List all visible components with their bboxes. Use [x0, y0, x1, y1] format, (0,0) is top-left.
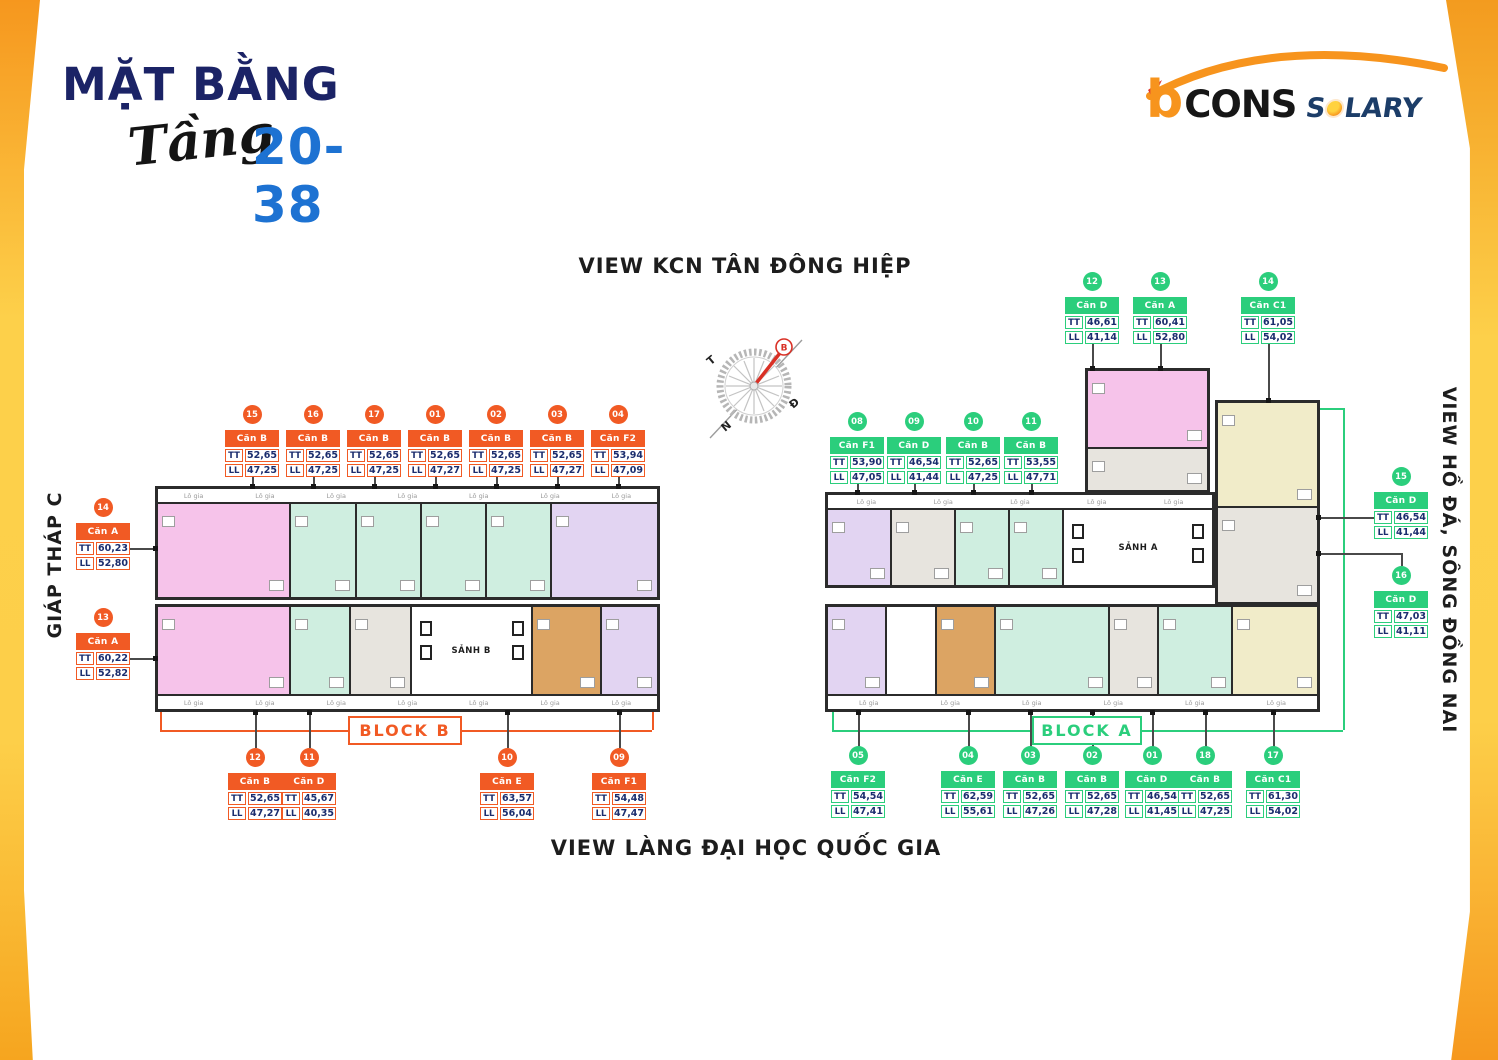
unit-area-row: LL56,04 — [480, 807, 534, 820]
logo-solary-s: S — [1304, 93, 1328, 124]
area-value: 52,80 — [96, 557, 130, 570]
unit-area-row: TT54,48 — [592, 792, 646, 805]
unit-area-row: LL47,26 — [1003, 805, 1057, 818]
unit-name: Căn D — [282, 773, 336, 790]
area-type-label: TT — [469, 449, 487, 462]
unit-card: 05Căn F2TT54,54LL47,41 — [831, 746, 885, 818]
area-type-label: LL — [1178, 805, 1196, 818]
connector-dot — [617, 710, 622, 715]
area-type-label: LL — [225, 464, 243, 477]
unit-name: Căn B — [1004, 437, 1058, 454]
connector-dot — [855, 490, 860, 495]
unit-area-row: LL47,25 — [469, 464, 523, 477]
plan-unit — [937, 607, 996, 694]
plan-unit — [828, 607, 887, 694]
area-type-label: LL — [1065, 805, 1083, 818]
area-type-label: TT — [76, 652, 94, 665]
unit-area-row: LL55,61 — [941, 805, 995, 818]
unit-number-badge: 12 — [246, 748, 265, 767]
unit-area-row: LL41,44 — [887, 471, 941, 484]
connector-line — [1273, 712, 1275, 748]
area-type-label: LL — [830, 471, 848, 484]
unit-number-badge: 05 — [849, 746, 868, 765]
connector-line — [1318, 517, 1374, 519]
connector-dot — [253, 710, 258, 715]
area-value: 52,82 — [96, 667, 130, 680]
compass-north: B — [781, 344, 788, 354]
area-value: 47,25 — [1198, 805, 1232, 818]
area-value: 47,28 — [1085, 805, 1119, 818]
area-value: 47,41 — [851, 805, 885, 818]
area-type-label: TT — [592, 792, 610, 805]
unit-area-row: TT52,65 — [225, 449, 279, 462]
unit-area-row: LL41,45 — [1125, 805, 1179, 818]
unit-number-badge: 14 — [1259, 272, 1278, 291]
area-value: 47,26 — [1023, 805, 1057, 818]
area-type-label: TT — [830, 456, 848, 469]
balcony-label: Lô gia — [859, 699, 878, 707]
area-type-label: TT — [941, 790, 959, 803]
area-type-label: TT — [1003, 790, 1021, 803]
logo-solary: S LARY — [1304, 93, 1424, 124]
elevator-shaft — [1192, 548, 1204, 563]
area-type-label: TT — [591, 449, 609, 462]
area-value: 52,65 — [306, 449, 340, 462]
area-value: 47,25 — [245, 464, 279, 477]
unit-card: 01Căn DTT46,54LL41,45 — [1125, 746, 1179, 818]
unit-number-badge: 13 — [1151, 272, 1170, 291]
unit-name: Căn B — [530, 430, 584, 447]
area-type-label: LL — [831, 805, 849, 818]
logo-cons: CONS — [1184, 88, 1296, 121]
area-value: 52,65 — [966, 456, 1000, 469]
unit-card: 14Căn C1TT61,05LL54,02 — [1241, 272, 1295, 344]
area-type-label: TT — [282, 792, 300, 805]
unit-card: 10Căn ETT63,57LL56,04 — [480, 748, 534, 820]
plan-unit: SẢNH B — [412, 607, 533, 694]
area-value: 47,27 — [550, 464, 584, 477]
area-value: 40,35 — [302, 807, 336, 820]
area-value: 47,25 — [489, 464, 523, 477]
unit-number-badge: 01 — [1143, 746, 1162, 765]
area-value: 56,04 — [500, 807, 534, 820]
connector-line — [507, 712, 509, 748]
unit-area-row: TT52,65 — [347, 449, 401, 462]
area-type-label: LL — [228, 807, 246, 820]
area-value: 52,65 — [245, 449, 279, 462]
unit-card: 12Căn BTT52,65LL47,27 — [228, 748, 282, 820]
unit-area-row: TT46,61 — [1065, 316, 1119, 329]
unit-area-row: TT53,94 — [591, 449, 645, 462]
connector-dot — [1271, 710, 1276, 715]
balcony-label: Lô gia — [326, 699, 345, 707]
area-value: 47,25 — [966, 471, 1000, 484]
area-type-label: LL — [1241, 331, 1259, 344]
connector-dot — [372, 484, 377, 489]
connector-dot — [555, 484, 560, 489]
unit-number-badge: 01 — [426, 405, 445, 424]
unit-number-badge: 14 — [94, 498, 113, 517]
unit-area-row: LL47,05 — [830, 471, 884, 484]
plan-unit — [158, 504, 291, 597]
unit-area-row: TT47,03 — [1374, 610, 1428, 623]
elevator-shaft — [512, 621, 524, 636]
area-type-label: TT — [1374, 610, 1392, 623]
area-type-label: TT — [1374, 511, 1392, 524]
connector-dot — [307, 710, 312, 715]
area-type-label: LL — [946, 471, 964, 484]
area-type-label: LL — [1374, 526, 1392, 539]
unit-area-row: TT53,55 — [1004, 456, 1058, 469]
plan-unit — [291, 607, 350, 694]
unit-area-row: TT52,65 — [408, 449, 462, 462]
unit-area-row: TT46,54 — [1125, 790, 1179, 803]
area-type-label: LL — [347, 464, 365, 477]
elevator-shaft — [420, 621, 432, 636]
view-label-top: VIEW KCN TÂN ĐÔNG HIỆP — [578, 254, 911, 278]
unit-area-row: LL54,02 — [1241, 331, 1295, 344]
unit-name: Căn D — [1125, 771, 1179, 788]
area-value: 46,61 — [1085, 316, 1119, 329]
plan-unit — [1218, 508, 1317, 602]
area-value: 46,54 — [1145, 790, 1179, 803]
page-title: MẶT BẰNG — [62, 62, 340, 107]
balcony-label: Lô gia — [469, 699, 488, 707]
connector-line — [255, 712, 257, 748]
unit-area-row: TT46,54 — [1374, 511, 1428, 524]
floor-range: 20-38 — [252, 118, 345, 234]
unit-card: 15Căn DTT46,54LL41,44 — [1374, 467, 1428, 539]
unit-area-row: TT52,65 — [1003, 790, 1057, 803]
unit-area-row: TT52,65 — [946, 456, 1000, 469]
unit-area-row: LL41,11 — [1374, 625, 1428, 638]
area-value: 52,65 — [550, 449, 584, 462]
area-value: 41,14 — [1085, 331, 1119, 344]
balcony-strip: Lô giaLô giaLô giaLô giaLô gia — [828, 495, 1212, 510]
lobby-label: SẢNH A — [1118, 543, 1157, 553]
area-type-label: TT — [1178, 790, 1196, 803]
balcony-label: Lô gia — [857, 498, 876, 506]
unit-area-row: TT52,65 — [469, 449, 523, 462]
unit-name: Căn E — [941, 771, 995, 788]
connector-dot — [1316, 515, 1321, 520]
plan-unit — [1010, 510, 1064, 585]
connector-dot — [1028, 710, 1033, 715]
connector-dot — [1203, 710, 1208, 715]
balcony-label: Lô gia — [612, 699, 631, 707]
area-value: 47,09 — [611, 464, 645, 477]
plan-units: SẢNH B — [158, 607, 657, 694]
unit-number-badge: 03 — [1021, 746, 1040, 765]
connector-line — [160, 712, 162, 730]
connector-line — [1343, 408, 1345, 730]
area-type-label: LL — [1065, 331, 1083, 344]
area-value: 60,22 — [96, 652, 130, 665]
unit-number-badge: 11 — [1022, 412, 1041, 431]
unit-area-row: TT52,65 — [1065, 790, 1119, 803]
area-type-label: LL — [76, 557, 94, 570]
area-value: 45,67 — [302, 792, 336, 805]
unit-area-row: LL47,25 — [347, 464, 401, 477]
unit-area-row: LL47,41 — [831, 805, 885, 818]
area-value: 47,03 — [1394, 610, 1428, 623]
floor-plan-bar: Lô giaLô giaLô giaLô giaLô giaLô gia — [825, 604, 1320, 712]
unit-card: 02Căn BTT52,65LL47,25 — [469, 405, 523, 477]
unit-area-row: LL47,28 — [1065, 805, 1119, 818]
connector-line — [309, 712, 311, 748]
connector-dot — [616, 484, 621, 489]
balcony-label: Lô gia — [255, 492, 274, 500]
balcony-strip: Lô giaLô giaLô giaLô giaLô giaLô giaLô g… — [158, 489, 657, 504]
area-value: 47,71 — [1024, 471, 1058, 484]
plan-unit — [1159, 607, 1233, 694]
area-type-label: TT — [1241, 316, 1259, 329]
unit-number-badge: 17 — [365, 405, 384, 424]
area-type-label: TT — [225, 449, 243, 462]
unit-name: Căn E — [480, 773, 534, 790]
connector-dot — [1150, 710, 1155, 715]
unit-card: 13Căn ATT60,41LL52,80 — [1133, 272, 1187, 344]
unit-name: Căn C1 — [1241, 297, 1295, 314]
plan-unit — [158, 607, 291, 694]
balcony-label: Lô gia — [1010, 498, 1029, 506]
unit-card: 09Căn F1TT54,48LL47,47 — [592, 748, 646, 820]
connector-dot — [1029, 490, 1034, 495]
unit-number-badge: 18 — [1196, 746, 1215, 765]
connector-line — [1092, 343, 1094, 368]
plan-unit — [1110, 607, 1159, 694]
balcony-label: Lô gia — [1104, 699, 1123, 707]
balcony-label: Lô gia — [184, 699, 203, 707]
unit-number-badge: 03 — [548, 405, 567, 424]
unit-name: Căn A — [1133, 297, 1187, 314]
unit-area-row: LL47,47 — [592, 807, 646, 820]
elevator-shaft — [512, 645, 524, 660]
unit-name: Căn C1 — [1246, 771, 1300, 788]
plan-units — [158, 504, 657, 597]
connector-dot — [856, 710, 861, 715]
area-value: 60,41 — [1153, 316, 1187, 329]
balcony-label: Lô gia — [1164, 498, 1183, 506]
area-value: 52,65 — [1085, 790, 1119, 803]
unit-area-row: TT46,54 — [887, 456, 941, 469]
area-value: 54,54 — [851, 790, 885, 803]
area-value: 62,59 — [961, 790, 995, 803]
balcony-strip: Lô giaLô giaLô giaLô giaLô giaLô gia — [828, 694, 1317, 709]
unit-area-row: LL54,02 — [1246, 805, 1300, 818]
area-value: 60,23 — [96, 542, 130, 555]
unit-number-badge: 13 — [94, 608, 113, 627]
balcony-label: Lô gia — [398, 492, 417, 500]
lobby-label: SẢNH B — [452, 646, 491, 656]
connector-line — [462, 730, 652, 732]
area-type-label: TT — [1133, 316, 1151, 329]
view-label-bottom: VIEW LÀNG ĐẠI HỌC QUỐC GIA — [551, 836, 942, 860]
unit-name: Căn D — [1374, 591, 1428, 608]
unit-name: Căn F1 — [592, 773, 646, 790]
area-type-label: TT — [1125, 790, 1143, 803]
connector-dot — [1266, 398, 1271, 403]
area-value: 46,54 — [907, 456, 941, 469]
block-b-label: BLOCK B — [348, 716, 462, 745]
area-type-label: TT — [1004, 456, 1022, 469]
unit-card: 12Căn DTT46,61LL41,14 — [1065, 272, 1119, 344]
unit-area-row: TT62,59 — [941, 790, 995, 803]
plan-unit — [956, 510, 1010, 585]
connector-line — [1268, 343, 1270, 400]
balcony-label: Lô gia — [933, 498, 952, 506]
unit-number-badge: 11 — [300, 748, 319, 767]
connector-line — [968, 712, 970, 748]
balcony-label: Lô gia — [469, 492, 488, 500]
unit-number-badge: 10 — [964, 412, 983, 431]
area-value: 53,55 — [1024, 456, 1058, 469]
balcony-label: Lô gia — [1185, 699, 1204, 707]
area-value: 47,27 — [248, 807, 282, 820]
area-type-label: TT — [228, 792, 246, 805]
unit-number-badge: 12 — [1083, 272, 1102, 291]
unit-area-row: LL47,71 — [1004, 471, 1058, 484]
area-value: 53,90 — [850, 456, 884, 469]
area-value: 53,94 — [611, 449, 645, 462]
brand-logo: b CONS S LARY — [1146, 66, 1456, 146]
connector-line — [1318, 553, 1401, 555]
unit-card: 02Căn BTT52,65LL47,28 — [1065, 746, 1119, 818]
unit-card: 04Căn F2TT53,94LL47,09 — [591, 405, 645, 477]
connector-line — [130, 658, 155, 660]
area-type-label: LL — [592, 807, 610, 820]
area-value: 52,80 — [1153, 331, 1187, 344]
plan-unit — [892, 510, 956, 585]
unit-name: Căn B — [228, 773, 282, 790]
connector-line — [1142, 730, 1343, 732]
area-value: 41,44 — [1394, 526, 1428, 539]
unit-name: Căn B — [225, 430, 279, 447]
area-type-label: LL — [1246, 805, 1264, 818]
connector-dot — [153, 656, 158, 661]
unit-name: Căn D — [1065, 297, 1119, 314]
unit-number-badge: 16 — [304, 405, 323, 424]
area-value: 41,44 — [907, 471, 941, 484]
area-type-label: TT — [1065, 790, 1083, 803]
unit-area-row: TT52,65 — [286, 449, 340, 462]
unit-area-row: TT61,30 — [1246, 790, 1300, 803]
connector-line — [130, 548, 155, 550]
area-type-label: LL — [286, 464, 304, 477]
connector-dot — [1090, 366, 1095, 371]
unit-number-badge: 10 — [498, 748, 517, 767]
connector-line — [832, 712, 834, 730]
unit-area-row: TT60,41 — [1133, 316, 1187, 329]
area-type-label: LL — [282, 807, 300, 820]
balcony-label: Lô gia — [941, 699, 960, 707]
connector-line — [619, 712, 621, 748]
connector-dot — [971, 490, 976, 495]
plan-unit — [422, 504, 487, 597]
connector-dot — [505, 710, 510, 715]
elevator-shaft — [420, 645, 432, 660]
balcony-label: Lô gia — [1267, 699, 1286, 707]
unit-card: 15Căn BTT52,65LL47,25 — [225, 405, 279, 477]
area-value: 52,65 — [489, 449, 523, 462]
area-type-label: LL — [1003, 805, 1021, 818]
area-value: 61,30 — [1266, 790, 1300, 803]
unit-number-badge: 08 — [848, 412, 867, 431]
area-value: 46,54 — [1394, 511, 1428, 524]
unit-area-row: TT63,57 — [480, 792, 534, 805]
area-value: 61,05 — [1261, 316, 1295, 329]
area-value: 52,65 — [428, 449, 462, 462]
connector-line — [858, 712, 860, 748]
unit-name: Căn D — [1374, 492, 1428, 509]
area-type-label: LL — [530, 464, 548, 477]
view-label-right: VIEW HỒ ĐÁ, SÔNG ĐỒNG NAI — [1438, 387, 1460, 734]
connector-dot — [1090, 710, 1095, 715]
area-type-label: LL — [1125, 805, 1143, 818]
compass-icon: B T Đ N — [698, 330, 814, 446]
floor-plan-bar: SẢNH BLô giaLô giaLô giaLô giaLô giaLô g… — [155, 604, 660, 712]
area-value: 52,65 — [248, 792, 282, 805]
compass-west: T — [704, 353, 718, 368]
area-type-label: TT — [887, 456, 905, 469]
plan-unit — [552, 504, 657, 597]
connector-dot — [433, 484, 438, 489]
area-value: 54,48 — [612, 792, 646, 805]
balcony-label: Lô gia — [255, 699, 274, 707]
unit-number-badge: 15 — [243, 405, 262, 424]
unit-number-badge: 16 — [1392, 566, 1411, 585]
connector-dot — [311, 484, 316, 489]
unit-number-badge: 17 — [1264, 746, 1283, 765]
area-value: 52,65 — [367, 449, 401, 462]
unit-area-row: TT61,05 — [1241, 316, 1295, 329]
plan-unit — [291, 504, 356, 597]
balcony-label: Lô gia — [1022, 699, 1041, 707]
plan-unit — [828, 510, 892, 585]
unit-name: Căn B — [469, 430, 523, 447]
area-type-label: LL — [76, 667, 94, 680]
connector-dot — [1316, 551, 1321, 556]
area-value: 47,25 — [306, 464, 340, 477]
unit-name: Căn B — [1003, 771, 1057, 788]
unit-name: Căn F2 — [591, 430, 645, 447]
area-value: 41,11 — [1394, 625, 1428, 638]
unit-name: Căn F2 — [831, 771, 885, 788]
plan-units — [828, 607, 1317, 694]
unit-area-row: TT52,65 — [1178, 790, 1232, 803]
area-value: 47,25 — [367, 464, 401, 477]
area-type-label: LL — [591, 464, 609, 477]
area-type-label: TT — [831, 790, 849, 803]
unit-number-badge: 15 — [1392, 467, 1411, 486]
unit-card: 04Căn ETT62,59LL55,61 — [941, 746, 995, 818]
elevator-shaft — [1192, 524, 1204, 539]
connector-dot — [153, 546, 158, 551]
plan-unit — [1088, 371, 1207, 449]
floor-plan-bar: Lô giaLô giaLô giaLô giaLô giaSẢNH A — [825, 492, 1215, 588]
balcony-label: Lô gia — [612, 492, 631, 500]
connector-line — [1320, 408, 1343, 410]
connector-dot — [966, 710, 971, 715]
area-type-label: TT — [946, 456, 964, 469]
area-type-label: TT — [530, 449, 548, 462]
unit-area-row: TT52,65 — [228, 792, 282, 805]
plan-unit — [351, 607, 412, 694]
connector-dot — [250, 484, 255, 489]
unit-area-row: LL52,82 — [76, 667, 130, 680]
unit-card: 16Căn BTT52,65LL47,25 — [286, 405, 340, 477]
unit-name: Căn B — [1178, 771, 1232, 788]
